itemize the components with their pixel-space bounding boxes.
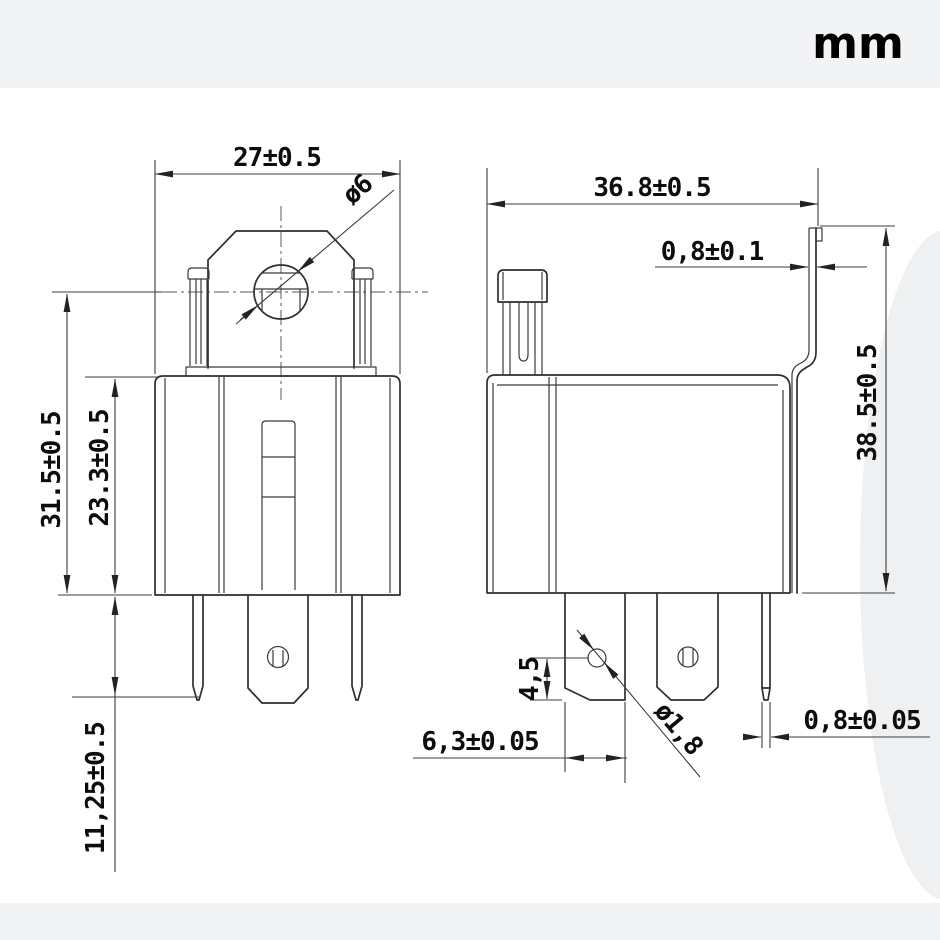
- dim-label-side-width: 36.8±0.5: [593, 173, 710, 203]
- bottom-band: [0, 903, 940, 940]
- drawing-canvas: mm 27±0.5 ø6 31.5±: [0, 0, 940, 940]
- units-label: mm: [812, 18, 904, 69]
- dim-label-front-width: 27±0.5: [233, 143, 321, 173]
- top-band: [0, 0, 940, 88]
- dim-label-hole-to-tip: 4,5: [515, 657, 545, 701]
- dim-label-front-pin-length: 11,25±0.5: [81, 722, 111, 854]
- dim-label-front-overall-height: 31.5±0.5: [37, 411, 67, 528]
- dim-label-front-body-height: 23.3±0.5: [85, 409, 115, 526]
- relay-dimension-drawing: mm 27±0.5 ø6 31.5±: [0, 0, 940, 940]
- dim-label-bracket-thickness: 0,8±0.1: [661, 237, 764, 267]
- dim-label-pin-thickness: 0,8±0.05: [803, 706, 920, 736]
- dim-label-blade-width: 6,3±0.05: [421, 727, 538, 757]
- paper-background: [0, 0, 940, 940]
- dim-label-side-overall-height: 38.5±0.5: [853, 344, 883, 461]
